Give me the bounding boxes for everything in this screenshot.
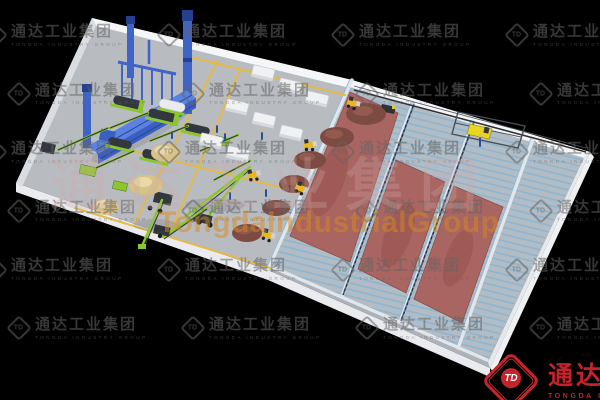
brand-monogram-text: TD xyxy=(504,373,517,384)
brand-texts: 通达工业 TONGDA INDUS xyxy=(548,362,600,400)
industrial-plant-render-page: TD通达工业集团TONGDA INDUSTRY GROUPTD通达工业集团TON… xyxy=(0,0,600,400)
sand-pile xyxy=(129,175,163,195)
worker xyxy=(224,131,227,140)
chimney-cap xyxy=(126,16,135,24)
brand-name-english: TONGDA INDUS xyxy=(548,393,600,400)
worker xyxy=(265,187,268,196)
compost-pile xyxy=(346,103,386,125)
compost-pile xyxy=(262,200,290,216)
chimney-cap xyxy=(182,10,193,21)
stacker-head xyxy=(138,244,146,249)
sand-pile xyxy=(151,144,181,162)
worker xyxy=(216,123,219,132)
compost-pile xyxy=(320,127,354,147)
worker xyxy=(171,129,174,138)
worker xyxy=(261,130,264,139)
chimney-band xyxy=(183,58,192,62)
chimney-cap xyxy=(82,84,92,92)
plant-3d-scene xyxy=(0,0,600,400)
compost-pile xyxy=(232,224,262,242)
worker xyxy=(229,190,232,199)
brand-monogram-icon: TD xyxy=(501,368,521,388)
brand-logo: TD 通达工业 TONGDA INDUS xyxy=(486,356,600,400)
worker xyxy=(479,135,482,146)
brand-name-chinese: 通达工业 xyxy=(548,362,600,391)
sand-pile xyxy=(93,199,119,215)
brand-diamond-icon: TD xyxy=(481,351,540,400)
compost-pile xyxy=(294,151,326,169)
